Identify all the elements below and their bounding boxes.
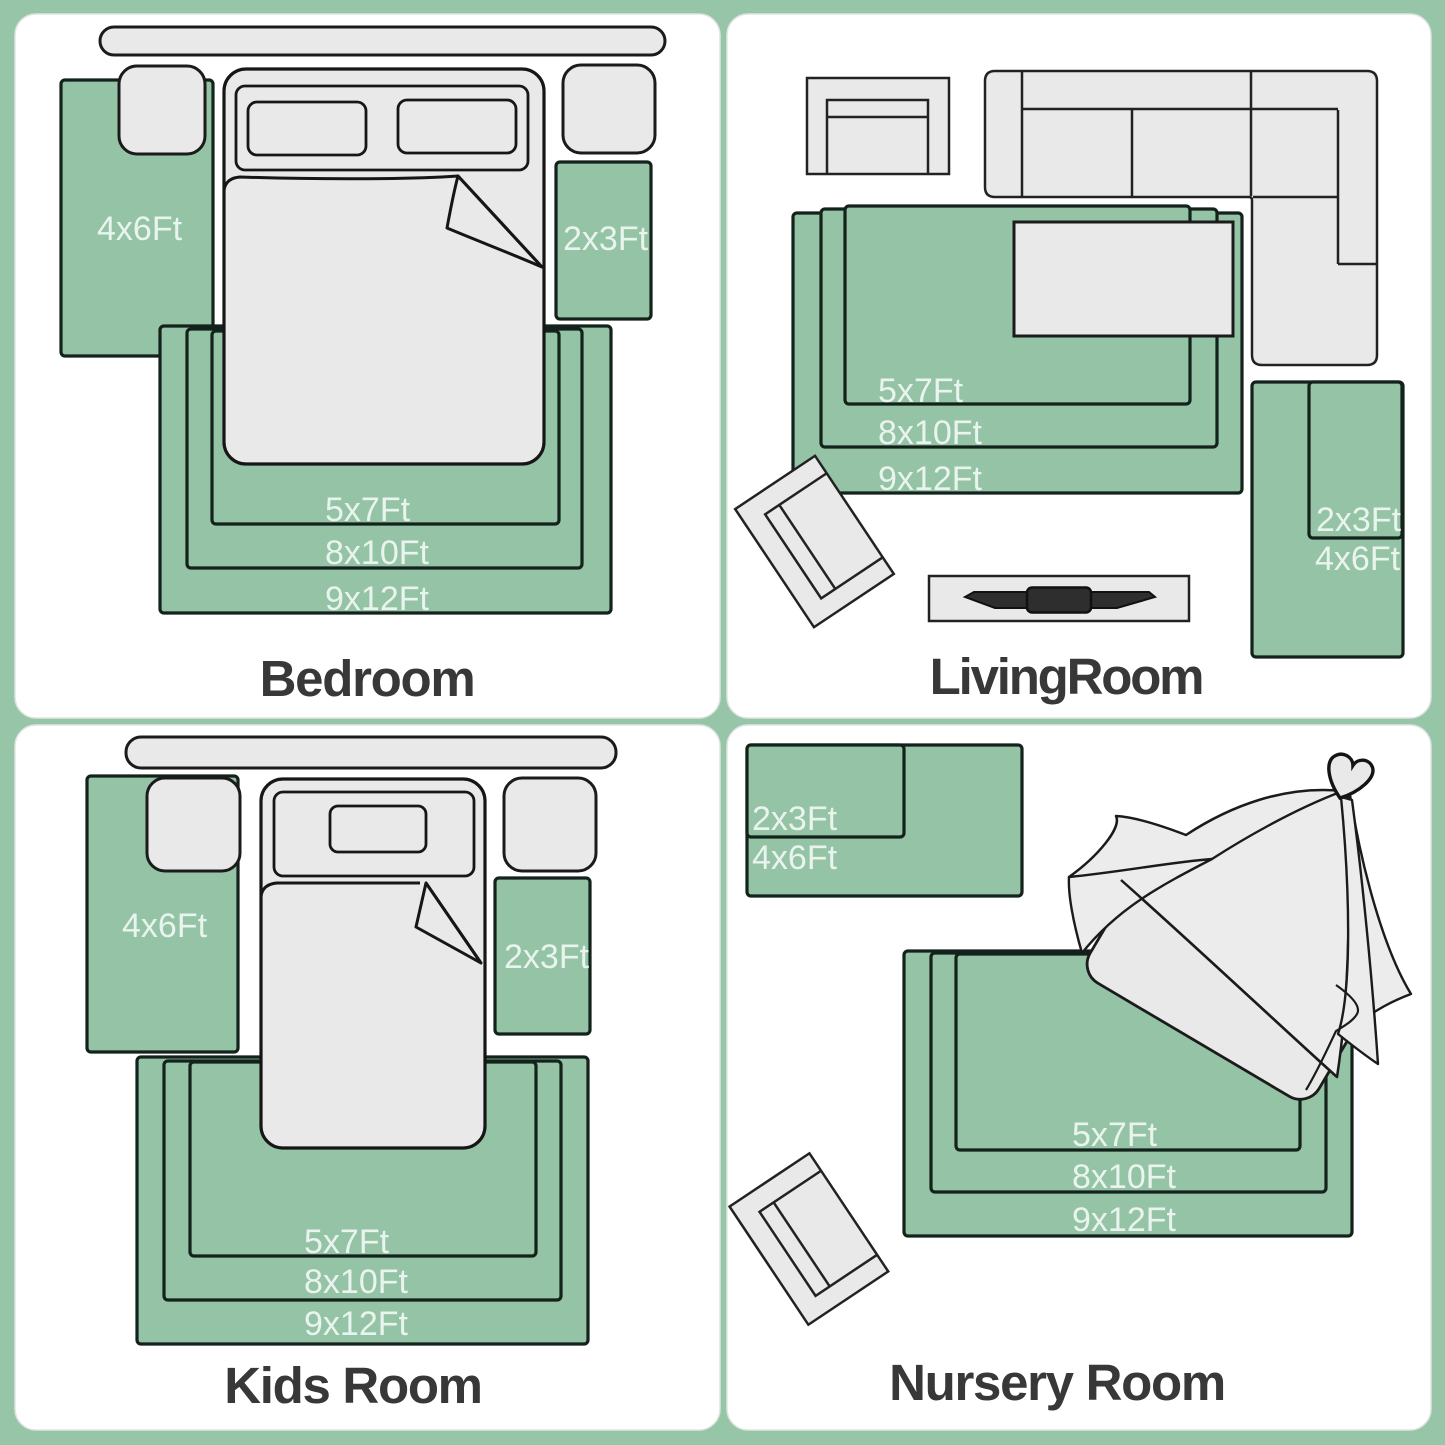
- svg-text:5x7Ft: 5x7Ft: [1072, 1116, 1158, 1154]
- svg-text:4x6Ft: 4x6Ft: [122, 907, 208, 945]
- svg-text:Bedroom: Bedroom: [260, 650, 475, 707]
- svg-text:5x7Ft: 5x7Ft: [878, 372, 964, 410]
- svg-text:9x12Ft: 9x12Ft: [878, 460, 982, 498]
- svg-text:8x10Ft: 8x10Ft: [304, 1263, 408, 1301]
- svg-text:2x3Ft: 2x3Ft: [563, 220, 649, 258]
- svg-text:Nursery Room: Nursery Room: [889, 1354, 1225, 1411]
- svg-text:2x3Ft: 2x3Ft: [504, 938, 590, 976]
- svg-text:4x6Ft: 4x6Ft: [752, 839, 838, 877]
- svg-text:4x6Ft: 4x6Ft: [97, 210, 183, 248]
- svg-text:5x7Ft: 5x7Ft: [325, 491, 411, 529]
- svg-text:9x12Ft: 9x12Ft: [1072, 1201, 1176, 1239]
- svg-text:5x7Ft: 5x7Ft: [304, 1223, 390, 1261]
- svg-text:2x3Ft: 2x3Ft: [1316, 501, 1402, 539]
- svg-text:8x10Ft: 8x10Ft: [878, 414, 982, 452]
- svg-text:8x10Ft: 8x10Ft: [325, 534, 429, 572]
- svg-text:9x12Ft: 9x12Ft: [304, 1305, 408, 1343]
- svg-text:Kids Room: Kids Room: [224, 1357, 481, 1414]
- svg-text:LivingRoom: LivingRoom: [930, 648, 1203, 705]
- svg-text:8x10Ft: 8x10Ft: [1072, 1158, 1176, 1196]
- svg-text:4x6Ft: 4x6Ft: [1315, 540, 1401, 578]
- svg-text:9x12Ft: 9x12Ft: [325, 580, 429, 618]
- svg-text:2x3Ft: 2x3Ft: [752, 800, 838, 838]
